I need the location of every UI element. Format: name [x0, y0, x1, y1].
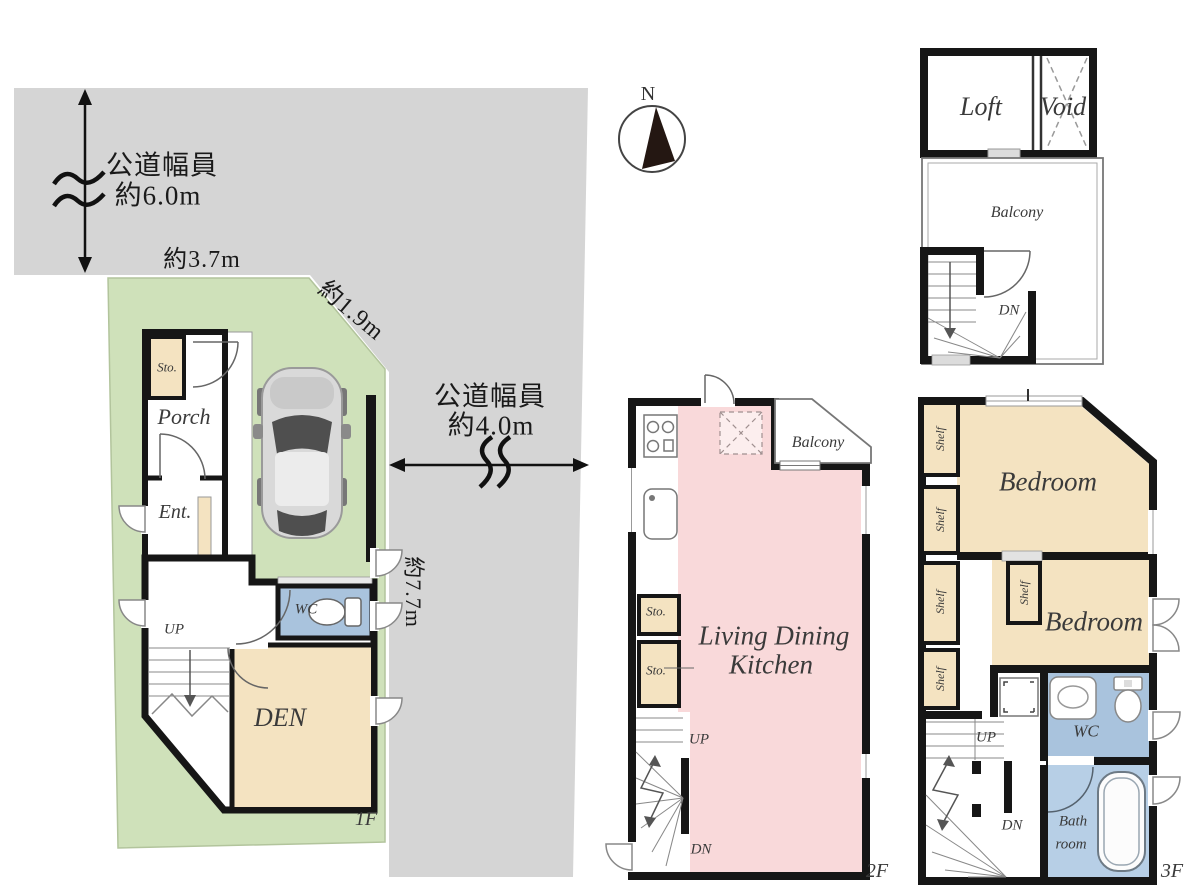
shelf-2-label: Shelf	[934, 508, 946, 532]
storage-2f-2-label: Sto.	[646, 664, 666, 677]
balcony-2f-label: Balcony	[792, 435, 844, 451]
stove-icon	[644, 415, 677, 457]
road-width-top-label-2: 約6.0m	[115, 183, 202, 210]
shelf-1-label: Shelf	[934, 427, 946, 451]
washbasin-icon	[1050, 677, 1096, 719]
loft-stairs-down-label: DN	[999, 304, 1020, 319]
toilet-1f-label: WC	[295, 603, 318, 618]
stairs-up-3f-label: UP	[976, 731, 996, 746]
bath-room-label-2: room	[1055, 838, 1086, 853]
toilet-3f-label: WC	[1073, 723, 1099, 740]
road-width-top-label-1: 公道幅員	[106, 153, 218, 180]
shelf-4-label: Shelf	[934, 667, 946, 691]
loft-balcony-label: Balcony	[991, 205, 1043, 221]
bathtub-icon	[1098, 772, 1145, 871]
stairs-up-2f-label: UP	[689, 733, 709, 748]
compass-north-icon	[619, 106, 685, 172]
bedroom-2-label: Bedroom	[1045, 609, 1143, 636]
void-label: Void	[1040, 94, 1086, 120]
floorplan-canvas: 公道幅員 約6.0m 約3.7m 約1.9m 公道幅員 約4.0m 約7.7m …	[0, 0, 1200, 895]
loft-label: Loft	[960, 94, 1002, 120]
toilet-fixture-icon-3f	[1114, 677, 1142, 722]
floor-label-3f: 3F	[1161, 861, 1183, 881]
approach-path	[225, 332, 252, 560]
sink-icon	[644, 489, 677, 539]
shelf-5-label: Shelf	[1018, 581, 1030, 605]
ldk-label-1: Living Dining	[699, 623, 850, 650]
washer-space	[1000, 678, 1038, 716]
road-width-right-label-2: 約4.0m	[448, 413, 535, 440]
ldk-label-2: Kitchen	[729, 652, 813, 679]
shelf-3-label: Shelf	[934, 590, 946, 614]
stairs-up-1f-label: UP	[164, 623, 184, 638]
stairs-down-2f-label: DN	[691, 843, 712, 858]
entrance-door-sill	[198, 497, 211, 559]
compass-north-label: N	[641, 84, 655, 104]
balcony-2f-area	[775, 399, 871, 463]
den-label: DEN	[254, 705, 306, 731]
storage-1f-label: Sto.	[157, 361, 177, 374]
floorplan-drawing	[0, 0, 1200, 895]
floor-label-1f: 1F	[355, 809, 377, 829]
stairs-down-3f-label: DN	[1002, 819, 1023, 834]
entrance-label: Ent.	[159, 502, 192, 522]
floor-label-2f: 2F	[866, 861, 888, 881]
car-illustration	[253, 368, 351, 538]
bedroom-1-label: Bedroom	[999, 469, 1097, 496]
bath-room-label-1: Bath	[1059, 815, 1087, 830]
fence-wall	[366, 395, 376, 562]
door-arc	[606, 844, 632, 870]
storage-2f-1-label: Sto.	[646, 605, 666, 618]
porch-label: Porch	[158, 406, 211, 428]
frontage-dim-label: 約3.7m	[163, 248, 241, 272]
road-width-right-label-1: 公道幅員	[434, 384, 546, 411]
void-hatch-square	[720, 412, 762, 454]
depth-dim-label: 約7.7m	[402, 556, 424, 628]
